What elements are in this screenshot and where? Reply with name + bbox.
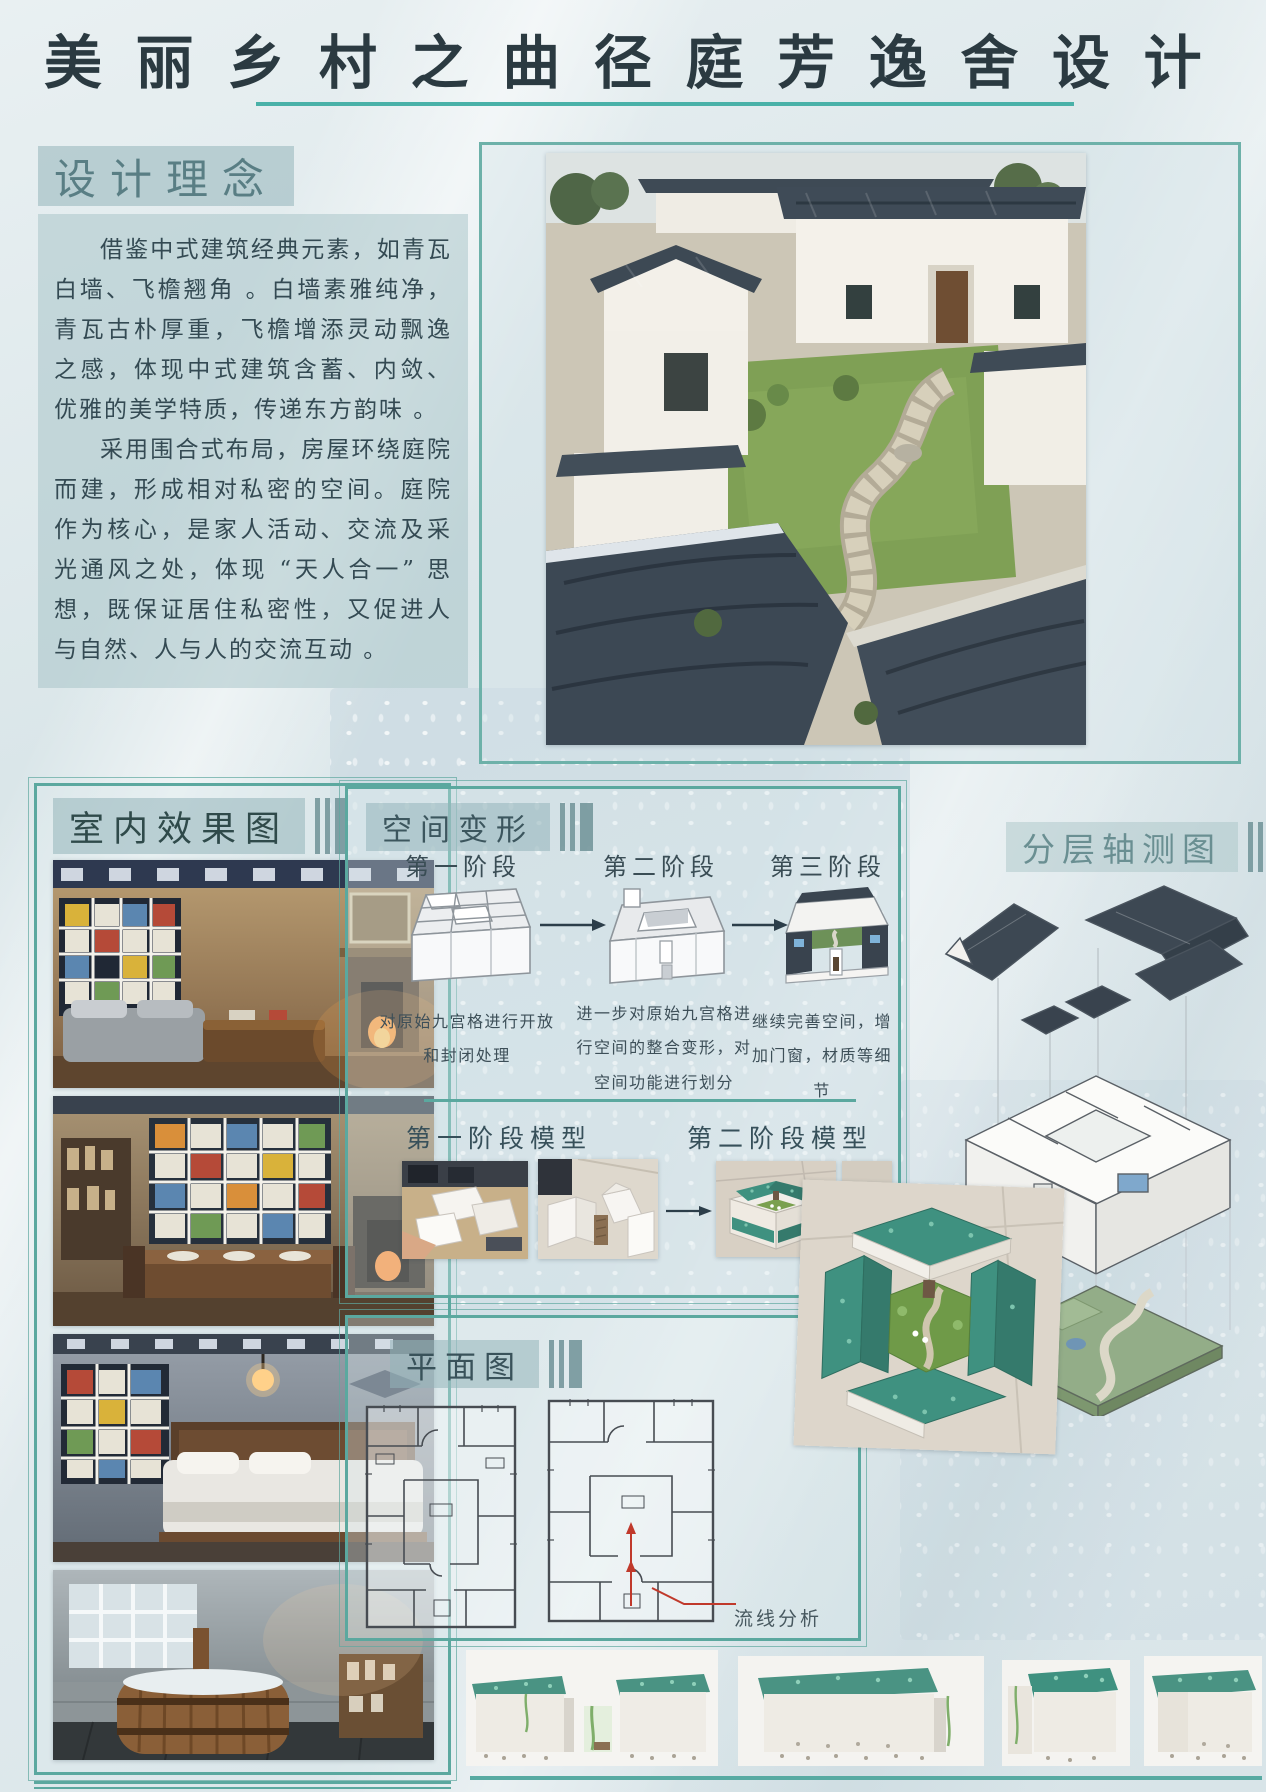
model-elevation-photo-2 [738,1656,984,1766]
stage-3-caption: 继续完善空间，增加门窗，材质等细节 [752,1005,892,1108]
phase-2-model-label: 第二阶段模型 [670,1119,890,1155]
model-elevation-photo-1 [466,1650,718,1766]
space-transformation-heading-bars-icon [560,803,593,851]
model-elevation-1-illustration [466,1650,718,1766]
floor-plan-heading-bars-icon [549,1340,582,1388]
interior-panel-underline-1 [34,1781,451,1784]
stage-3-diagram [778,879,892,995]
stage-models-divider [424,1099,856,1102]
stage-2-caption: 进一步对原始九宫格进行空间的整合变形，对空间功能进行划分 [576,997,752,1100]
flow-analysis-leader [650,1586,740,1616]
floor-plan-heading-text: 平面图 [390,1340,539,1388]
interior-panel-underline-2 [34,1787,451,1789]
floor-plan-heading: 平面图 [390,1340,582,1388]
courtyard-photo-frame [479,142,1241,764]
courtyard-aerial-illustration [546,153,1086,745]
design-concept-body: 借鉴中式建筑经典元素，如青瓦白墙、飞檐翘角 。白墙素雅纯净，青瓦古朴厚重，飞檐增… [38,214,468,688]
model-elevation-4-illustration [1144,1656,1262,1766]
interior-heading-text: 室内效果图 [53,798,305,854]
model-elevation-2-illustration [738,1656,984,1766]
phase-1-model-photo-2 [538,1159,658,1259]
floor-plan-drawing-1 [364,1404,518,1634]
design-concept-heading-text: 设计理念 [38,146,294,206]
floor-plan-panel: 平面图 [345,1315,861,1641]
axonometric-heading-text: 分层轴测图 [1006,822,1238,872]
design-concept-paragraph-2: 采用围合式布局，房屋环绕庭院而建，形成相对私密的空间。庭院作为核心，是家人活动、… [54,430,452,670]
stage-2-label: 第二阶段 [586,847,736,882]
bottom-strip-underline [470,1776,1262,1780]
design-concept-paragraph-1: 借鉴中式建筑经典元素，如青瓦白墙、飞檐翘角 。白墙素雅纯净，青瓦古朴厚重，飞檐增… [54,230,452,430]
space-transformation-heading: 空间变形 [366,803,593,851]
stage-arrow-1-icon [540,917,606,937]
axonometric-heading: 分层轴测图 [1006,822,1266,872]
workshop-photo-2-illustration [538,1159,658,1259]
title-underline [256,102,1074,106]
interior-heading-bars-icon [315,798,348,854]
workshop-photo-1-illustration [402,1161,528,1259]
interior-heading: 室内效果图 [53,798,348,854]
stage-2-massing-illustration [600,879,726,989]
design-concept-heading: 设计理念 [38,146,294,206]
final-model-photo [793,1180,1064,1455]
courtyard-aerial-photo [546,153,1086,745]
stage-1-grid-illustration [400,877,532,989]
flow-analysis-annotation: 流线分析 [734,1604,822,1631]
stage-1-diagram [400,877,532,993]
model-elevation-photo-4 [1144,1656,1262,1766]
floor-plan-1-illustration [364,1404,518,1630]
phase-1-model-label: 第一阶段模型 [384,1119,614,1155]
axonometric-heading-bars-icon [1248,822,1266,872]
stage-2-diagram [600,879,726,993]
poster-canvas: 美丽乡村之曲径庭芳逸舍设计 设计理念 借鉴中式建筑经典元素，如青瓦白墙、飞檐翘角… [0,0,1266,1792]
final-model-illustration [793,1180,1064,1455]
model-arrow-icon [666,1203,712,1222]
page-title: 美丽乡村之曲径庭芳逸舍设计 [44,16,1244,100]
phase-1-model-photo-1 [402,1161,528,1259]
stage-1-caption: 对原始九宫格进行开放和封闭处理 [374,1005,560,1074]
model-elevation-3-illustration [1002,1660,1130,1766]
stage-3-label: 第三阶段 [760,847,896,882]
model-elevation-photo-3 [1002,1660,1130,1766]
space-transformation-heading-text: 空间变形 [366,803,550,851]
stage-3-detailed-illustration [778,879,892,991]
